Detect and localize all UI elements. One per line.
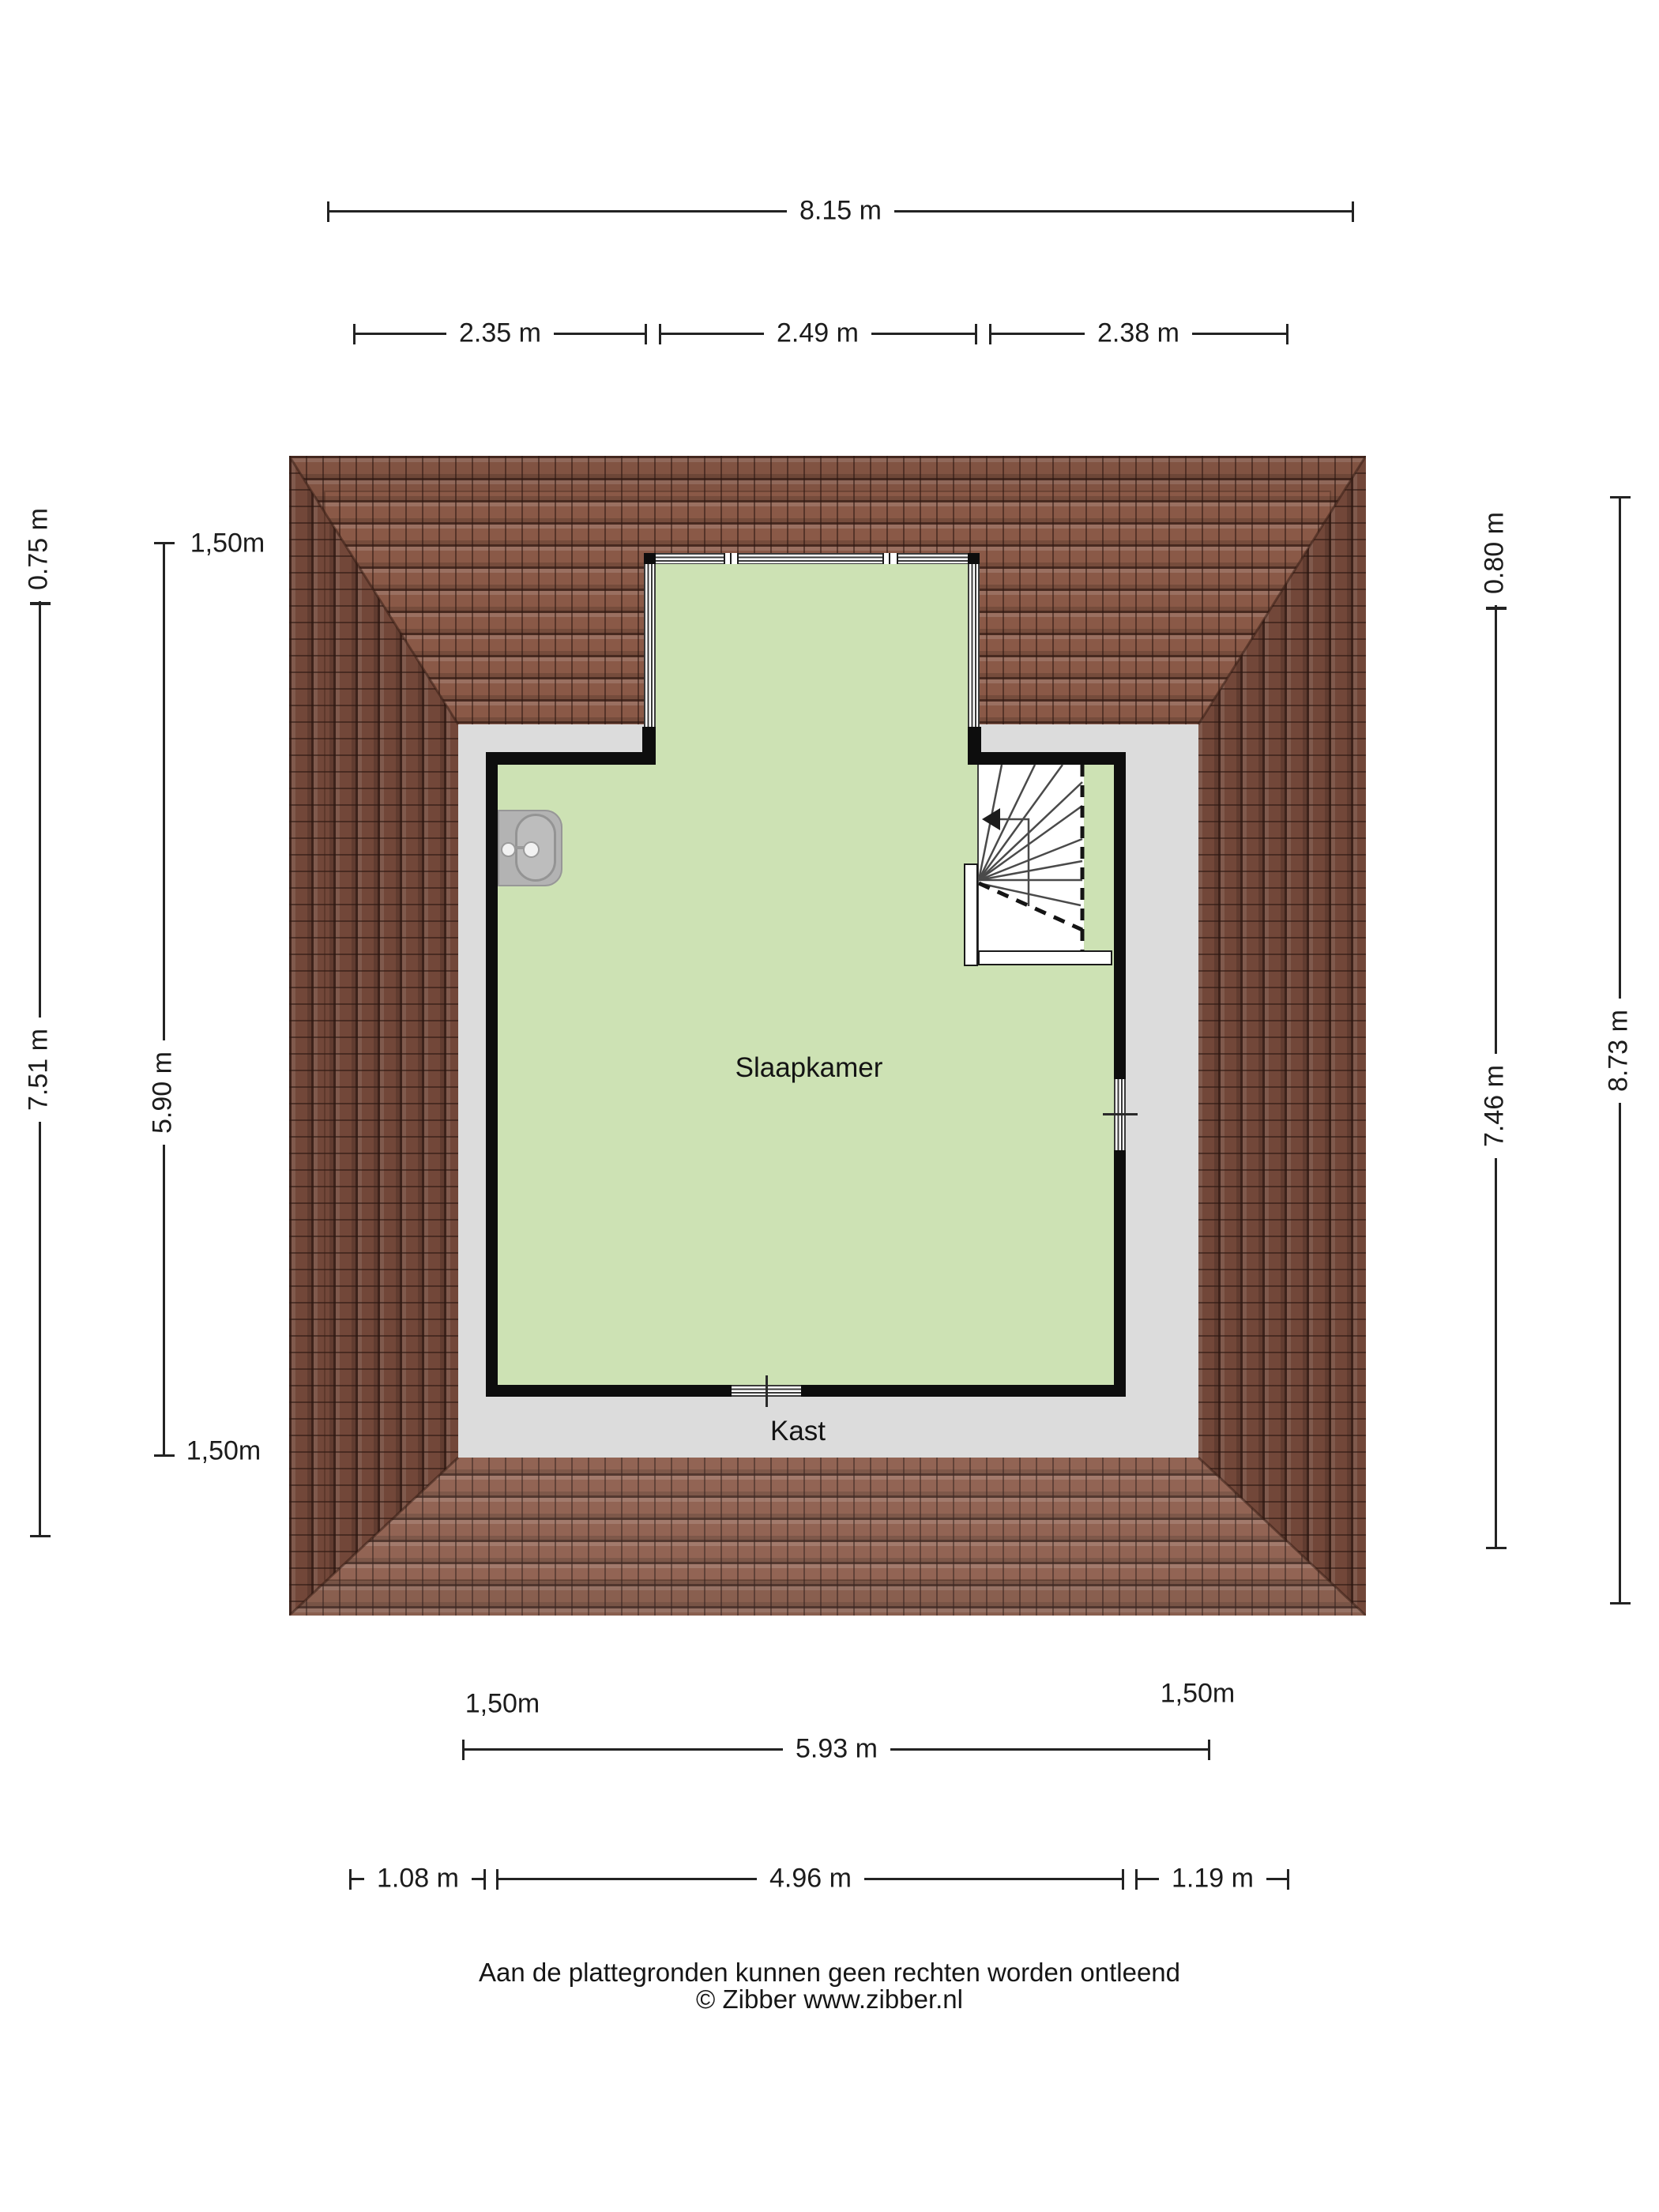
dormer-window-mullion-2 [882, 553, 898, 564]
stair-treads [968, 758, 1118, 972]
dim-label-left-inner: 5.90 m [146, 1040, 180, 1145]
floor-plan-page: Slaapkamer Kast 8.15 m 2.35 m 2.49 m 2.3… [0, 0, 1659, 2212]
dim-label-bottom-inner: 5.93 m [783, 1732, 890, 1766]
dormer-floor [656, 564, 968, 765]
footer-disclaimer: Aan de plattegronden kunnen geen rechten… [0, 1958, 1659, 1988]
dim-label-right-height: 7.46 m [1478, 1054, 1512, 1158]
washbasin-tap-knob-2 [523, 841, 540, 858]
dim-label-top-seg-3: 2.38 m [1085, 317, 1192, 351]
dim-label-left-clearance-top: 1,50m [190, 529, 265, 559]
dormer-front-window-2 [739, 553, 882, 564]
dormer-window-right [968, 564, 980, 728]
right-window-center-tick [1103, 1113, 1138, 1115]
dormer-front-window-1 [656, 553, 724, 564]
dim-label-bottom-seg-3: 1.19 m [1159, 1862, 1266, 1896]
dim-label-bottom-seg-1: 1.08 m [364, 1862, 472, 1896]
bottom-window-center-tick [766, 1375, 768, 1407]
dormer-corner-post-right [968, 553, 980, 564]
bedroom-label: Slaapkamer [735, 1052, 883, 1084]
dim-label-left-eave: 0.75 m [22, 497, 56, 601]
dormer-window-mullion-1 [724, 553, 739, 564]
dim-label-top-total: 8.15 m [787, 194, 894, 228]
dim-label-bottom-clearance-left: 1,50m [465, 1689, 540, 1720]
dormer-window-left [644, 564, 656, 728]
dormer-corner-post-left [644, 553, 656, 564]
dim-line-left-inner [163, 543, 165, 1456]
dim-label-right-total: 8.73 m [1602, 999, 1636, 1103]
dim-label-bottom-seg-2: 4.96 m [757, 1862, 864, 1896]
dim-label-right-eave: 0.80 m [1478, 501, 1512, 605]
dim-label-left-height: 7.51 m [22, 1018, 56, 1122]
dormer-front-window-3 [898, 553, 968, 564]
dim-label-left-clearance-bottom: 1,50m [186, 1436, 261, 1467]
dim-label-bottom-clearance-right: 1,50m [1161, 1679, 1236, 1710]
dim-label-top-seg-1: 2.35 m [446, 317, 554, 351]
dim-label-top-seg-2: 2.49 m [764, 317, 871, 351]
footer-credit: © Zibber www.zibber.nl [0, 1984, 1659, 2014]
washbasin [498, 810, 562, 886]
closet-label: Kast [770, 1416, 826, 1447]
washbasin-tap-knob-1 [501, 842, 516, 857]
